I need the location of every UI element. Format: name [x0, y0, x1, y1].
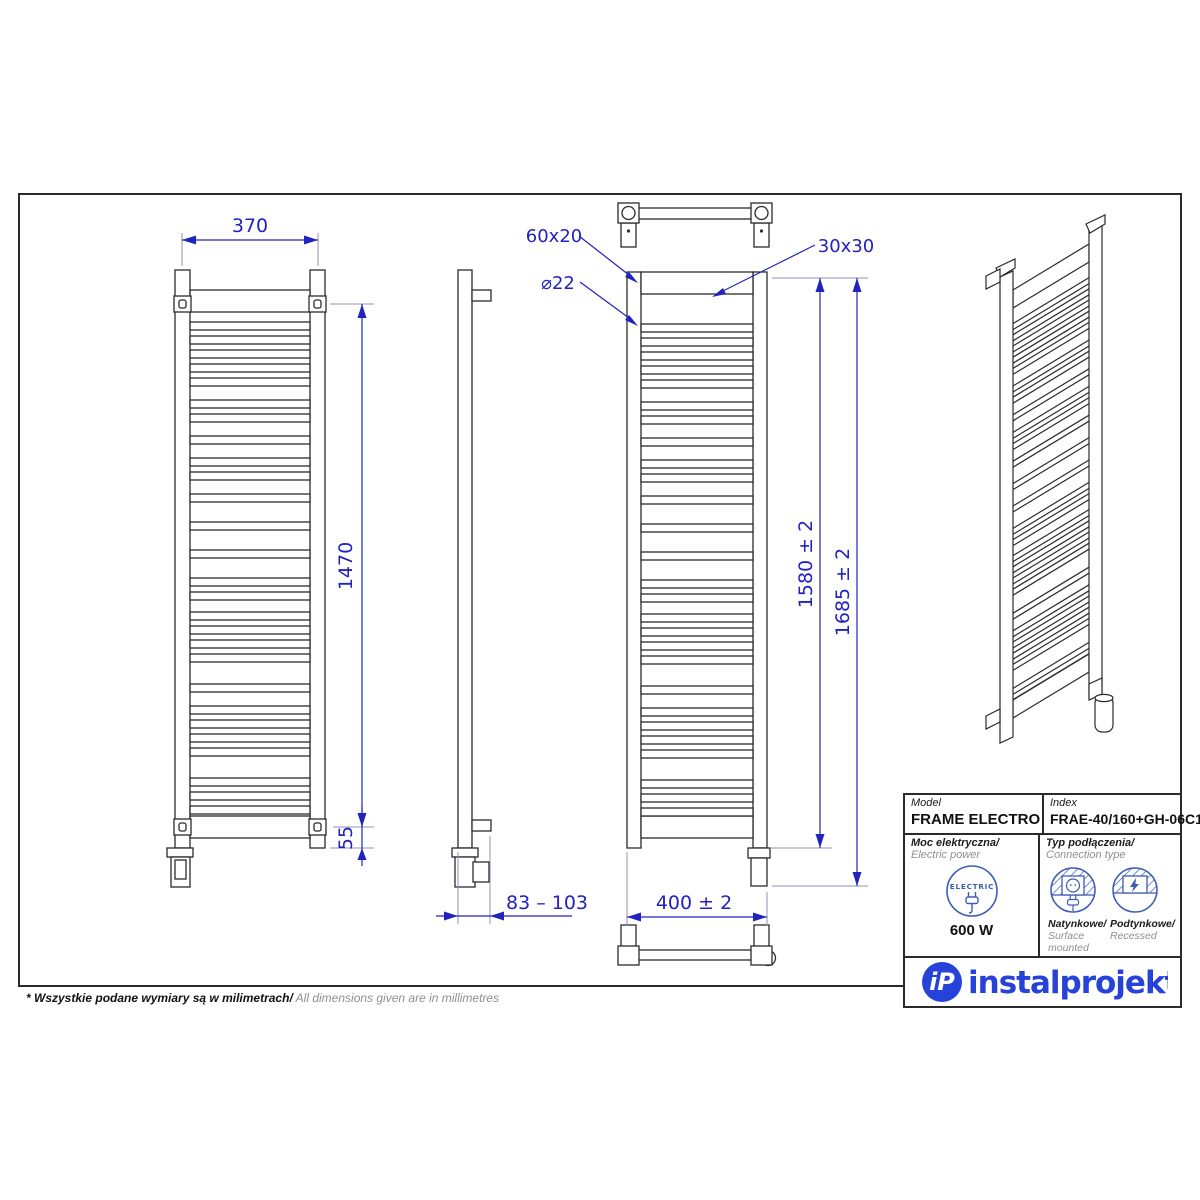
recessed-label-en: Recessed	[1110, 930, 1157, 942]
side-rail	[458, 270, 472, 848]
index-value: FRAE-40/160+GH-06C1	[1050, 811, 1200, 827]
conn-tube-array	[641, 324, 753, 816]
logo-monogram: iP	[929, 968, 955, 996]
connection-label-en: Connection type	[1046, 849, 1126, 861]
power-label-pl: Moc elektryczna/	[911, 837, 999, 849]
logo-row: iP instalprojekt	[905, 958, 1180, 1006]
connection-icons: Natynkowe/Surface mounted	[1046, 861, 1174, 954]
title-block-spec-row: Moc elektryczna/ Electric power ELECTRIC…	[905, 835, 1180, 958]
recessed-item: Podtynkowe/Recessed	[1110, 865, 1172, 954]
surface-label-pl: Natynkowe/	[1048, 918, 1106, 930]
front-left-rail	[175, 270, 190, 848]
plug-glyph	[966, 892, 978, 913]
model-cell: Model FRAME ELECTRO	[905, 795, 1044, 833]
electric-badge-icon: ELECTRIC	[942, 861, 1002, 921]
front-view	[167, 270, 326, 887]
power-cell: Moc elektryczna/ Electric power ELECTRIC…	[905, 835, 1040, 956]
label-crossbar-profile: 60x20	[526, 226, 582, 247]
surface-mounted-icon	[1048, 865, 1098, 915]
model-value: FRAME ELECTRO	[911, 811, 1036, 828]
iso-top-crossbar	[1013, 244, 1089, 308]
conn-bottom-crossbar	[641, 816, 753, 838]
bottom-view	[618, 925, 776, 966]
dim-conn-height: 1580 ± 2	[795, 520, 817, 608]
iso-bracket-top	[986, 269, 1000, 289]
leader-tube-diameter	[580, 282, 629, 318]
wall-bracket-top-left	[174, 296, 191, 312]
index-label: Index	[1050, 797, 1200, 809]
connection-cell: Typ podłączenia/Connection type	[1040, 835, 1180, 956]
recessed-label-pl: Podtynkowe/	[1110, 918, 1175, 930]
front-heating-element	[167, 848, 193, 887]
connection-label: Typ podłączenia/Connection type	[1046, 837, 1174, 861]
page-background: 370 1470 55 83 – 103 400 ± 2 1580 ± 2 16…	[0, 0, 1200, 1200]
surface-mounted-item: Natynkowe/Surface mounted	[1048, 865, 1110, 954]
model-label: Model	[911, 797, 1036, 809]
front-top-crossbar	[190, 290, 310, 312]
title-block-header-row: Model FRAME ELECTRO Index FRAE-40/160+GH…	[905, 795, 1180, 835]
label-rail-profile: 30x30	[818, 236, 874, 257]
front-right-rail	[310, 270, 325, 848]
iso-tube-array	[1013, 278, 1089, 717]
label-tube-diameter: ⌀22	[541, 273, 575, 294]
wall-bracket-bottom-right	[309, 819, 326, 835]
recessed-caption: Podtynkowe/Recessed	[1110, 918, 1175, 942]
dim-conn-total-height: 1685 ± 2	[832, 548, 854, 636]
leader-30x30	[723, 245, 815, 291]
side-bracket-bottom	[472, 820, 491, 831]
dim-side-depth: 83 – 103	[506, 892, 588, 914]
electric-badge-text: ELECTRIC	[949, 882, 993, 891]
power-value: 600 W	[950, 922, 993, 939]
iso-heating-element	[1089, 678, 1113, 732]
iso-right-rail	[1089, 225, 1102, 697]
iso-view	[986, 215, 1113, 743]
side-view	[452, 270, 491, 887]
wall-bracket-top-right	[309, 296, 326, 312]
conn-right-rail	[753, 272, 767, 848]
footnote-en: All dimensions given are in millimetres	[293, 991, 499, 1005]
iso-bracket-bottom	[986, 709, 1000, 729]
side-bracket-top	[472, 290, 491, 301]
recessed-icon	[1110, 865, 1160, 915]
connection-view	[627, 272, 770, 886]
surface-mounted-caption: Natynkowe/Surface mounted	[1048, 918, 1110, 954]
dim-front-height: 1470	[335, 542, 357, 590]
logo-name: instalprojekt	[968, 965, 1168, 1001]
index-cell: Index FRAE-40/160+GH-06C1	[1044, 795, 1200, 833]
dim-conn-width: 400 ± 2	[656, 892, 732, 914]
instalprojekt-logo: iP instalprojekt	[918, 959, 1168, 1005]
conn-top-crossbar	[641, 272, 753, 294]
wall-bracket-bottom-left	[174, 819, 191, 835]
connection-label-pl: Typ podłączenia/	[1046, 837, 1134, 849]
front-bottom-crossbar	[190, 816, 310, 838]
footnote: * Wszystkie podane wymiary są w milimetr…	[18, 985, 903, 1008]
title-block: Model FRAME ELECTRO Index FRAE-40/160+GH…	[903, 793, 1182, 1008]
conn-heating-element	[748, 848, 770, 886]
iso-left-rail	[1000, 271, 1013, 743]
front-tube-array	[190, 322, 310, 814]
dim-front-bottom-offset: 55	[335, 826, 357, 850]
top-view	[618, 203, 772, 247]
power-label: Moc elektryczna/ Electric power	[911, 837, 1032, 861]
power-label-en: Electric power	[911, 849, 980, 861]
dim-front-width: 370	[232, 215, 268, 237]
footnote-pl: * Wszystkie podane wymiary są w milimetr…	[26, 991, 293, 1005]
technical-drawing: 370 1470 55 83 – 103 400 ± 2 1580 ± 2 16…	[0, 0, 1200, 1200]
conn-left-rail	[627, 272, 641, 848]
surface-label-en: Surface mounted	[1048, 930, 1089, 954]
